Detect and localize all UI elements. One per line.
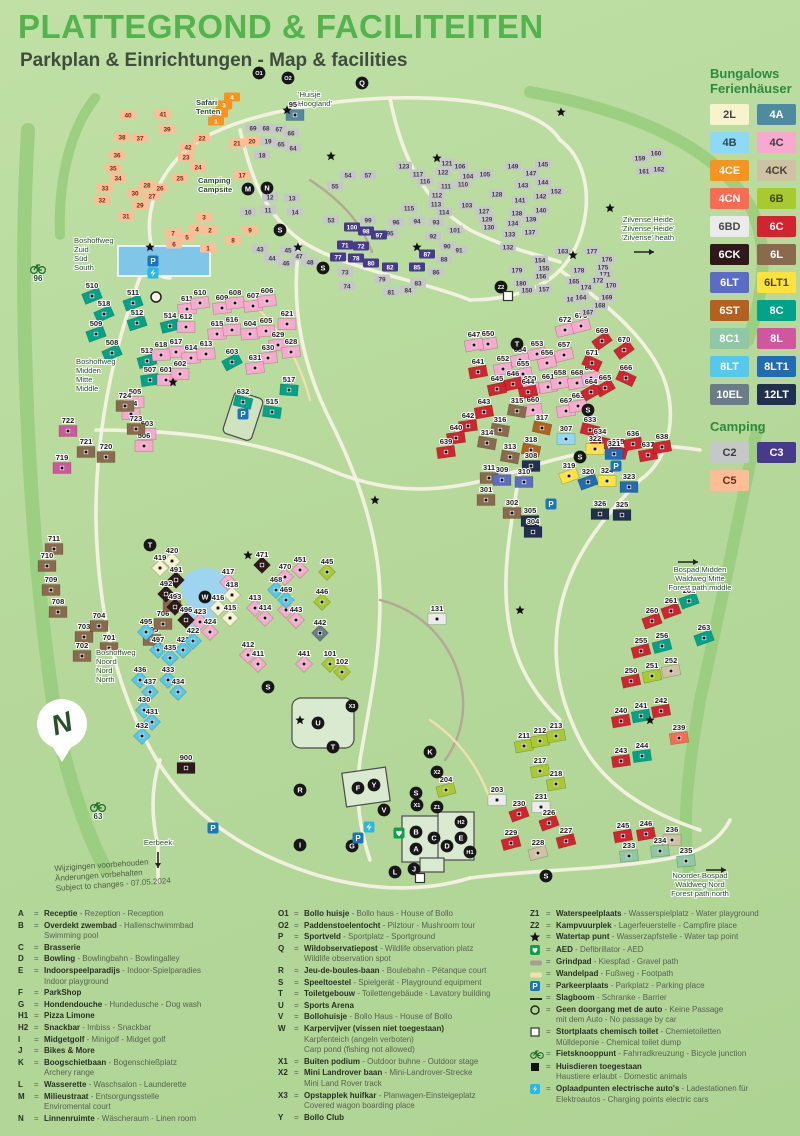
facility-marker-a: A <box>410 843 423 856</box>
map-text: 131 <box>431 604 444 613</box>
pets-allowed-dot <box>285 322 289 326</box>
map-text: Safari <box>196 98 217 107</box>
pets-allowed-dot <box>444 788 448 792</box>
bike-frame <box>34 265 42 270</box>
map-text: 137 <box>525 229 536 236</box>
pets-allowed-dot <box>90 294 94 298</box>
pets-allowed-dot <box>631 442 635 446</box>
ev-icon <box>530 1084 546 1105</box>
map-text: 322 <box>589 434 602 443</box>
map-text: 469 <box>280 585 293 594</box>
map-text: 325 <box>616 500 629 509</box>
camping-pitch-C5: 40 <box>120 111 136 120</box>
legend-equals: = <box>34 954 44 965</box>
map-text: H2 <box>457 820 464 826</box>
pets-allowed-dot <box>191 639 195 643</box>
map-text: 615 <box>211 319 224 328</box>
map-text: 174 <box>581 284 592 291</box>
pets-allowed-dot <box>216 606 220 610</box>
pets-allowed-dot <box>318 631 322 635</box>
legend-item: =Watertap punt - Wasserzapfstelle - Wate… <box>530 932 796 944</box>
map-text: 14 <box>291 209 299 216</box>
bungalow-6B: 102 <box>334 657 351 680</box>
facility-marker-x3: X3 <box>346 700 359 713</box>
map-text: P <box>613 462 619 471</box>
bungalow-4C: 616 <box>223 315 242 336</box>
map-text: 613 <box>200 339 213 348</box>
bungalow-6C: 645 <box>487 374 507 396</box>
pets-allowed-dot <box>158 566 162 570</box>
bungalow-4C: 628 <box>281 337 300 358</box>
pets-allowed-dot <box>563 328 567 332</box>
map-text: 708 <box>52 597 65 606</box>
legend-item-text: Fietsknooppunt - Fahrradkreuzung - Bicyc… <box>556 1049 746 1061</box>
camping-pitch-C2: 113 <box>428 200 444 209</box>
bungalow-legend-title: Bungalows Ferienhäuser <box>710 66 796 96</box>
map-text: 21 <box>233 140 241 147</box>
map-text: 495 <box>140 617 153 626</box>
map-text: 638 <box>656 432 669 441</box>
road <box>296 240 380 860</box>
bungalow-10EL: 442 <box>312 618 329 641</box>
camping-pitch-C2: 142 <box>533 192 549 201</box>
map-text: 436 <box>134 665 147 674</box>
pets-allowed-dot <box>619 719 623 723</box>
parking-icon: P <box>148 256 159 267</box>
legend-item: R=Jeu-de-boules-baan - Boulebahn - Pétan… <box>278 966 516 977</box>
pets-allowed-dot <box>600 339 604 343</box>
map-text: W <box>202 593 209 602</box>
map-text: 92 <box>429 233 437 240</box>
pets-allowed-dot <box>102 312 106 316</box>
pets-allowed-dot <box>174 578 178 582</box>
pets-allowed-dot <box>266 356 270 360</box>
map-text: 41 <box>159 111 167 118</box>
legend-item-key: Q <box>278 944 294 965</box>
map-text: 669 <box>596 326 609 335</box>
legend-item: X3=Opstapplek huifkar - Planwagen-Einste… <box>278 1091 516 1112</box>
map-text: 417 <box>222 567 235 576</box>
camping-pitch-C2: 92 <box>425 232 441 241</box>
map-text: 112 <box>432 192 443 199</box>
pets-allowed-dot <box>150 720 154 724</box>
direction-arrow-head <box>649 249 654 255</box>
map-text: 313 <box>504 442 517 451</box>
type-chip-2l: 2L <box>710 104 749 125</box>
map-text: 233 <box>623 841 636 850</box>
pets-allowed-dot <box>293 113 297 117</box>
legend-item: P=Sportveld - Sportplatz - Sportground <box>278 932 516 943</box>
legend-item-key: A <box>18 909 34 920</box>
map-text: 77 <box>334 254 342 261</box>
map-text: 242 <box>655 696 668 705</box>
map-text: 85 <box>413 264 421 271</box>
pets-allowed-dot <box>620 513 624 517</box>
map-text: S <box>586 406 591 415</box>
map-text: 628 <box>285 337 298 346</box>
camping-pitch-C3: 72 <box>353 242 369 251</box>
bungalow-6LT1: 319 <box>559 461 580 484</box>
pets-allowed-dot <box>253 366 257 370</box>
map-text: 492 <box>160 579 173 588</box>
type-chip-6lt: 6LT <box>710 272 749 293</box>
camping-pitch-C2: 157 <box>536 285 552 294</box>
bungalow-6B: 251 <box>642 661 662 683</box>
pets-allowed-dot <box>522 744 526 748</box>
pets-icon <box>530 1062 546 1083</box>
camping-pitch-C2: 88 <box>436 255 452 264</box>
legend-item-text: Midgetgolf - Minigolf - Midget golf <box>44 1035 165 1046</box>
map-text: K <box>427 748 433 757</box>
map-text: 39 <box>163 126 171 133</box>
legend-item: I=Midgetgolf - Minigolf - Midget golf <box>18 1035 264 1046</box>
map-text: 252 <box>665 656 678 665</box>
map-text: 101 <box>324 649 337 658</box>
legend-equals: = <box>546 1049 556 1061</box>
map-text: 711 <box>48 534 60 543</box>
map-text: 614 <box>185 343 198 352</box>
map-text: 217 <box>534 756 547 765</box>
pets-allowed-dot <box>531 530 535 534</box>
map-text: 645 <box>491 374 504 383</box>
legend-item: A=Receptie - Rezeption - Reception <box>18 909 264 920</box>
camping-pitch-C2: 154 <box>532 256 548 265</box>
camping-pitch-C2: 121 <box>439 159 455 168</box>
pets-allowed-dot <box>562 353 566 357</box>
camping-pitch-C2: 167 <box>580 308 596 317</box>
legend-item-text: Karpervijver (vissen niet toegestaan)Kar… <box>304 1024 444 1056</box>
map-text: S <box>321 264 326 273</box>
bungalow-4C: 608 <box>225 288 244 309</box>
pets-allowed-dot <box>486 342 490 346</box>
pets-allowed-dot <box>123 404 127 408</box>
type-chip-4a: 4A <box>757 104 796 125</box>
map-text: 441 <box>298 649 311 658</box>
legend-equals: = <box>546 1084 556 1105</box>
pets-allowed-dot <box>639 714 643 718</box>
camping-pitch-C2: 86 <box>428 268 444 277</box>
camping-pitch-C2: 123 <box>396 162 412 171</box>
facility-marker-o2: O2 <box>282 72 295 85</box>
map-text: 115 <box>404 205 415 212</box>
camping-pitch-C2: 161 <box>636 167 652 176</box>
bungalow-4C: 424 <box>202 617 219 640</box>
pets-allowed-dot <box>170 559 174 563</box>
bungalow-6C: 670 <box>613 335 634 360</box>
legend-item-text: Boogschietbaan - BogenschießplatzArchery… <box>44 1058 177 1079</box>
map-text: 113 <box>431 201 442 208</box>
legend-equals: = <box>546 1062 556 1083</box>
bungalow-6B: 217 <box>530 756 550 778</box>
map-text: 309 <box>496 465 509 474</box>
aed-icon <box>530 945 546 957</box>
legend-item: Y=Bollo Club <box>278 1113 516 1124</box>
legend-item-key: Z2 <box>530 921 546 932</box>
legend-equals: = <box>294 1012 304 1023</box>
map-text: 4 <box>230 94 234 101</box>
bungalow-6B: 445 <box>319 557 336 580</box>
legend-item-text: Linnenruimte - Wäscheraum - Linen room <box>44 1114 196 1125</box>
camping-pitch-C2: 14 <box>287 208 303 217</box>
bungalow-6BD: 131 <box>428 604 446 625</box>
camping-pitch-C2: 169 <box>599 293 615 302</box>
camping-pitch-C5: 2 <box>202 226 218 235</box>
bungalow-6C: 226 <box>539 808 560 831</box>
pets-allowed-dot <box>639 649 643 653</box>
pets-allowed-dot <box>485 441 489 445</box>
map-text: 127 <box>479 208 490 215</box>
map-text: 721 <box>80 437 93 446</box>
pets-allowed-dot <box>198 620 202 624</box>
map-text: Zilvense Heide <box>623 215 673 224</box>
map-text: 144 <box>538 179 549 186</box>
parking-icon: P <box>611 461 622 472</box>
map-text: 178 <box>574 267 585 274</box>
pets-allowed-dot <box>564 409 568 413</box>
type-chip-12lt: 12LT <box>757 384 796 405</box>
map-text: 446 <box>316 587 329 596</box>
pets-allowed-dot <box>684 859 688 863</box>
pets-allowed-dot <box>589 390 593 394</box>
type-chip-c5: C5 <box>710 470 749 491</box>
map-text: 643 <box>478 397 491 406</box>
legend-item-key: U <box>278 1001 294 1012</box>
camping-pitch-C5: 6 <box>166 240 182 249</box>
ev-charging-icon <box>148 268 159 279</box>
map-text: S <box>544 872 549 881</box>
type-chip-8l: 8L <box>757 328 796 349</box>
road <box>556 480 700 830</box>
legend-item-key: Y <box>278 1113 294 1124</box>
bungalow-4C: 618 <box>152 340 171 361</box>
legend-item-text: Mini Landrover baan - Mini-Landrover-Str… <box>304 1068 472 1089</box>
map-text: 63 <box>94 812 103 821</box>
pets-allowed-dot <box>444 450 448 454</box>
legend-item-text: Slagboom - Schranke - Barrier <box>556 993 667 1004</box>
map-text: 95 <box>386 230 394 237</box>
map-text: 143 <box>518 182 529 189</box>
facility-marker-t: T <box>327 741 340 754</box>
pets-allowed-dot <box>168 324 172 328</box>
legend-item-key: N <box>18 1114 34 1125</box>
legend-item: X1=Buiten podium - Outdoor buhne - Outdo… <box>278 1057 516 1068</box>
legend-item-key: L <box>18 1080 34 1091</box>
map-text: 101 <box>450 227 461 234</box>
map-text: 666 <box>620 363 633 372</box>
pets-allowed-dot <box>184 766 188 770</box>
map-text: 152 <box>551 188 562 195</box>
map-text: 315 <box>511 396 524 405</box>
map-text: 443 <box>290 605 303 614</box>
legend-chip-row: C5 <box>710 470 796 491</box>
map-text: 304 <box>527 517 540 526</box>
pets-allowed-dot <box>515 409 519 413</box>
legend-chip-row: 6CK6L <box>710 244 796 265</box>
legend-item: H1=Pizza Limone <box>18 1011 264 1022</box>
map-text: 'Zilvense' heath <box>622 233 674 242</box>
camping-pitch-4CE: 4 <box>224 93 240 102</box>
bike-frame <box>94 803 102 808</box>
map-text: 121 <box>442 160 453 167</box>
camping-pitch-C5: 25 <box>172 174 188 183</box>
map-text: P <box>240 410 246 419</box>
bungalow-8C: 509 <box>86 319 107 342</box>
map-text: 471 <box>256 550 269 559</box>
pets-allowed-dot <box>658 849 662 853</box>
svg-text:P: P <box>532 982 538 991</box>
map-text: 318 <box>525 435 538 444</box>
pets-allowed-dot <box>270 410 274 414</box>
map-text: 104 <box>463 173 474 180</box>
legend-item-text: Geen doorgang met de auto - Keine Passag… <box>556 1005 723 1026</box>
pets-allowed-dot <box>283 575 287 579</box>
legend-item-text: Stortplaats chemisch toilet - Chemietoil… <box>556 1027 721 1048</box>
map-text: 229 <box>505 828 518 837</box>
map-text: P <box>210 824 216 833</box>
camping-pitch-C2: 155 <box>536 264 552 273</box>
bungalow-6L: 723 <box>127 414 145 435</box>
camping-pitch-C3: 87 <box>419 250 435 259</box>
camping-pitch-C5: 8 <box>225 236 241 245</box>
legend-equals: = <box>294 966 304 977</box>
map-text: Süd <box>74 254 88 263</box>
facility-marker-s: S <box>274 224 287 237</box>
map-text: 40 <box>124 112 132 119</box>
bungalow-6L: 301 <box>477 485 495 506</box>
pets-allowed-dot <box>45 564 49 568</box>
legend-item: L=Wasserette - Waschsalon - Launderette <box>18 1080 264 1091</box>
legend-item: =Geen doorgang met de auto - Keine Passa… <box>530 1005 796 1026</box>
camping-pitch-C2: 164 <box>573 293 589 302</box>
pets-allowed-dot <box>622 348 626 352</box>
pets-allowed-dot <box>482 410 486 414</box>
pets-allowed-dot <box>164 378 168 382</box>
legend-item: T=Toiletgebouw - Toilettengebäude - Lava… <box>278 989 516 1000</box>
map-text: 3 <box>202 214 206 221</box>
type-chip-4c: 4C <box>757 132 796 153</box>
legend-item-key: T <box>278 989 294 1000</box>
pets-allowed-dot <box>508 455 512 459</box>
facility-marker-s: S <box>262 681 275 694</box>
map-text: 512 <box>131 308 144 317</box>
parking-icon: P <box>530 981 546 993</box>
camping-pitch-C5: 26 <box>152 184 168 193</box>
pets-allowed-dot <box>230 328 234 332</box>
map-text: 73 <box>341 269 349 276</box>
pets-allowed-dot <box>184 618 188 622</box>
map-text: Camping <box>198 176 231 185</box>
camping-pitch-C5: 22 <box>194 134 210 143</box>
facility-marker-v: V <box>378 804 391 817</box>
legend-item: Z1=Waterspeelplaats - Wasserspielplatz -… <box>530 909 796 920</box>
type-chip-6bd: 6BD <box>710 216 749 237</box>
pets-allowed-dot <box>687 599 691 603</box>
legend-item-text: Sports Arena <box>304 1001 354 1012</box>
facility-marker-w: W <box>199 591 212 604</box>
camping-pitch-C2: 160 <box>648 149 664 158</box>
bungalow-4C: 621 <box>278 309 296 330</box>
map-text: 509 <box>90 319 103 328</box>
legend-item-text: Bikes & More <box>44 1046 95 1057</box>
map-text: 90 <box>443 243 451 250</box>
legend-item-text: Bowling - Bowlingbahn - Bowlingalley <box>44 954 180 965</box>
pets-allowed-dot <box>131 301 135 305</box>
map-text: 122 <box>438 169 449 176</box>
legend-equals: = <box>294 1057 304 1068</box>
pets-allowed-dot <box>253 606 257 610</box>
map-text: 664 <box>585 377 598 386</box>
bungalow-4C: 612 <box>177 312 195 333</box>
map-text: 172 <box>593 277 604 284</box>
camping-pitch-C2: 99 <box>360 216 376 225</box>
map-text: Tenten <box>196 107 221 116</box>
camping-pitch-C2: 11 <box>260 206 276 215</box>
camping-pitch-C3: 78 <box>348 254 364 263</box>
map-text: 34 <box>114 175 122 182</box>
map-text: 415 <box>224 603 237 612</box>
map-text: Zuid <box>74 245 89 254</box>
facility-marker-x1: X1 <box>411 799 424 812</box>
map-text: 86 <box>432 269 440 276</box>
camping-pitch-C2: 18 <box>254 151 270 160</box>
map-text: 517 <box>283 375 296 384</box>
pets-allowed-dot <box>287 388 291 392</box>
map-text: 633 <box>584 415 597 424</box>
pets-allowed-dot <box>669 669 673 673</box>
forest-band <box>60 98 95 235</box>
legend-item: V=Bollohuisje - Bollo Haus - House of Bo… <box>278 1012 516 1023</box>
map-text: 658 <box>554 368 567 377</box>
legend-equals: = <box>294 944 304 965</box>
map-text: 10 <box>244 209 252 216</box>
map-text: 79 <box>378 276 386 283</box>
bungalow-4C: 657 <box>554 340 574 363</box>
map-text: 243 <box>615 746 628 755</box>
camping-pitch-C5: 32 <box>94 196 110 205</box>
legend-chip-row: C2C3 <box>710 442 796 463</box>
pets-allowed-dot <box>135 321 139 325</box>
map-text: 231 <box>535 792 548 801</box>
pets-allowed-dot <box>598 512 602 516</box>
legend-equals: = <box>34 1080 44 1091</box>
camping-pitch-C2: 54 <box>340 171 356 180</box>
legend-item-text: Parkeerplaats - Parkplatz - Parking plac… <box>556 981 705 993</box>
map-text: 93 <box>432 219 440 226</box>
bungalow-6C: 666 <box>616 363 637 387</box>
camping-pitch-C2: 150 <box>519 286 535 295</box>
map-text: 20 <box>248 138 256 145</box>
camping-pitch-C3: 71 <box>337 241 353 250</box>
type-chip-8c: 8C <box>757 300 796 321</box>
legend-equals: = <box>294 989 304 1000</box>
legend-equals: = <box>34 909 44 920</box>
legend-item-text: AED - Defibrillator - AED <box>556 945 644 957</box>
camping-pitch-C5: 35 <box>105 164 121 173</box>
legend-item: =Grindpad - Kiespfad - Gravel path <box>530 957 796 968</box>
map-text: 496 <box>180 605 193 614</box>
map-text: 145 <box>538 161 549 168</box>
map-text: P <box>355 834 361 843</box>
map-text: 8 <box>231 237 235 244</box>
map-text: 139 <box>526 216 537 223</box>
map-text: 82 <box>386 264 394 271</box>
pets-allowed-dot <box>531 408 535 412</box>
legend-item: F=ParkShop <box>18 988 264 999</box>
camping-pitch-C2: 122 <box>435 168 451 177</box>
map-text: 510 <box>86 281 99 290</box>
map-text: 211 <box>518 731 530 740</box>
map-text: 631 <box>249 353 262 362</box>
